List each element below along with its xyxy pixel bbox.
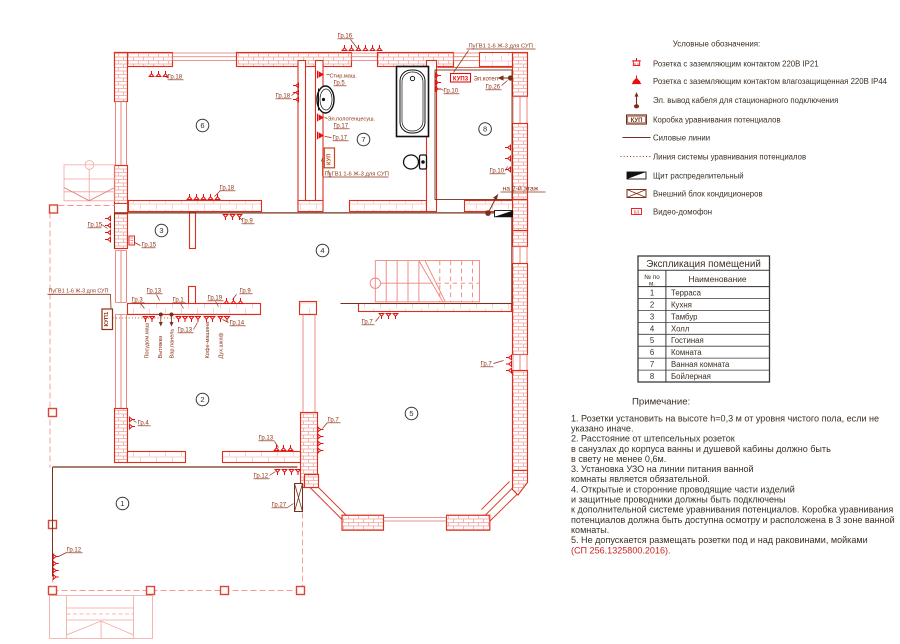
svg-text:4: 4 [650, 324, 655, 333]
svg-text:Комната: Комната [671, 348, 702, 357]
svg-text:6: 6 [650, 348, 654, 357]
svg-text:7: 7 [361, 135, 365, 144]
svg-text:Холл: Холл [671, 324, 690, 333]
svg-text:Вытяжка: Вытяжка [158, 335, 164, 359]
svg-text:на 2-й этаж: на 2-й этаж [503, 185, 539, 193]
svg-text:КУП: КУП [631, 118, 643, 124]
svg-text:1: 1 [650, 288, 654, 297]
svg-text:1: 1 [120, 499, 124, 508]
svg-text:и защитные проводники должны: и защитные проводники должны быть подклю… [571, 495, 785, 505]
svg-text:2. Расстояние от штепсельных р: 2. Расстояние от штепсельных розеток [571, 434, 735, 444]
svg-text:Посудом.маш: Посудом.маш [145, 322, 151, 358]
svg-text:комнаты.: комнаты. [571, 525, 609, 535]
svg-text:указано иначе.: указано иначе. [571, 423, 633, 433]
svg-text:КУП3: КУП3 [453, 77, 469, 83]
svg-text:Терраса: Терраса [671, 288, 702, 297]
svg-text:Розетка с заземляющим контакто: Розетка с заземляющим контактом влагозащ… [653, 77, 888, 86]
svg-text:8: 8 [650, 372, 654, 381]
svg-text:Эл.полотенцесуш.: Эл.полотенцесуш. [328, 117, 376, 123]
svg-text:5. Не допускается размещать ро: 5. Не допускается размещать розетки под … [571, 535, 868, 545]
svg-text:ПуГВ1 1-6 Ж-3 для СУП: ПуГВ1 1-6 Ж-3 для СУП [49, 289, 109, 295]
svg-text:2: 2 [650, 300, 654, 309]
svg-text:Линия системы уравнивания поте: Линия системы уравнивания потенциалов [653, 152, 806, 161]
svg-text:Экспликация помещений: Экспликация помещений [646, 259, 761, 270]
svg-text:Розетка с заземляющим контакто: Розетка с заземляющим контактом 220В IP2… [653, 59, 819, 68]
svg-text:(СП 256.1325800.2016).: (СП 256.1325800.2016). [571, 545, 671, 555]
svg-text:5: 5 [650, 336, 655, 345]
svg-text:КУП: КУП [327, 154, 333, 165]
svg-text:4. Открытые и сторонние провод: 4. Открытые и сторонние проводящие части… [571, 484, 795, 494]
svg-text:1. Розетки установить на высот: 1. Розетки установить на высоте h=0,3 м … [571, 413, 879, 423]
svg-text:м.: м. [649, 281, 655, 288]
svg-text:3. Установка УЗО на линии пита: 3. Установка УЗО на линии питания ванной [571, 464, 754, 474]
svg-text:5: 5 [409, 409, 413, 418]
svg-text:Кухня: Кухня [671, 300, 692, 309]
svg-text:в свету не менее 0,6м.: в свету не менее 0,6м. [571, 454, 666, 464]
svg-text:ВД: ВД [634, 209, 640, 214]
svg-text:Эл.котел: Эл.котел [474, 77, 499, 83]
svg-text:Щит распределительный: Щит распределительный [653, 171, 744, 180]
svg-text:комнаты является обязательной.: комнаты является обязательной. [571, 474, 710, 484]
svg-text:Видео-домофон: Видео-домофон [653, 207, 712, 216]
svg-text:7: 7 [650, 360, 654, 369]
svg-text:Гостиная: Гостиная [671, 336, 704, 345]
svg-text:Примечание:: Примечание: [632, 397, 690, 408]
svg-text:Эл. вывод кабеля для стационар: Эл. вывод кабеля для стационарного подкл… [653, 96, 838, 105]
svg-text:к дополнительной системе уравн: к дополнительной системе уравнивания пот… [571, 505, 893, 515]
svg-text:Кофе-машина: Кофе-машина [205, 321, 211, 359]
svg-text:Бойлерная: Бойлерная [671, 372, 711, 381]
svg-text:Коробка уравнивания потенциало: Коробка уравнивания потенциалов [653, 115, 781, 124]
svg-text:2: 2 [200, 395, 204, 404]
svg-text:в санузлах до корпуса ванны и: в санузлах до корпуса ванны и душевой ка… [571, 444, 831, 454]
svg-text:Стир.маш.: Стир.маш. [330, 74, 358, 80]
svg-text:Условные обозначения:: Условные обозначения: [673, 40, 760, 49]
svg-text:Тамбур: Тамбур [671, 312, 698, 321]
svg-text:Ванная комната: Ванная комната [671, 360, 730, 369]
svg-text:Наименование: Наименование [688, 274, 746, 284]
svg-text:3: 3 [159, 226, 163, 235]
svg-text:потенциалов должна быть доступ: потенциалов должна быть доступна осмотру… [571, 515, 895, 525]
svg-text:КУП1: КУП1 [104, 311, 110, 326]
svg-text:4: 4 [320, 246, 324, 255]
svg-text:ПуГВ1 1-6 Ж-3 для СУП: ПуГВ1 1-6 Ж-3 для СУП [469, 44, 533, 50]
svg-text:6: 6 [200, 121, 204, 130]
svg-text:Силовые линии: Силовые линии [653, 133, 710, 142]
svg-text:3: 3 [650, 312, 654, 321]
svg-text:Внешний блок кондиционеров: Внешний блок кондиционеров [653, 189, 763, 198]
svg-text:Дух.шкаф: Дух.шкаф [219, 332, 225, 358]
svg-text:8: 8 [483, 125, 487, 134]
svg-text:Вар.панель: Вар.панель [170, 329, 176, 359]
